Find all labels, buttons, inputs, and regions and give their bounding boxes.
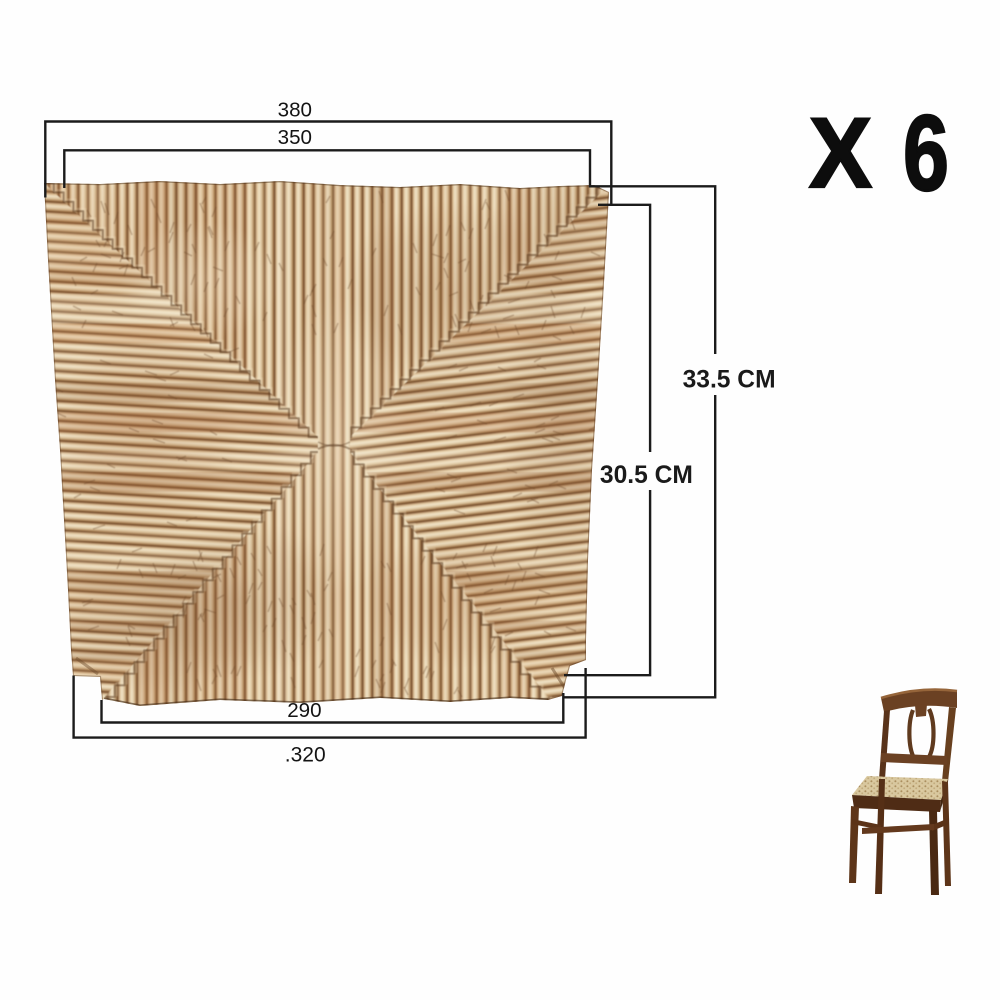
svg-text:380: 380: [278, 98, 312, 121]
svg-text:30.5 CM: 30.5 CM: [600, 462, 693, 489]
svg-text:6: 6: [903, 92, 949, 213]
svg-text:33.5 CM: 33.5 CM: [683, 367, 776, 394]
svg-text:290: 290: [287, 699, 321, 722]
svg-text:350: 350: [278, 126, 312, 149]
svg-text:X: X: [809, 97, 872, 208]
svg-text:.320: .320: [285, 744, 326, 767]
